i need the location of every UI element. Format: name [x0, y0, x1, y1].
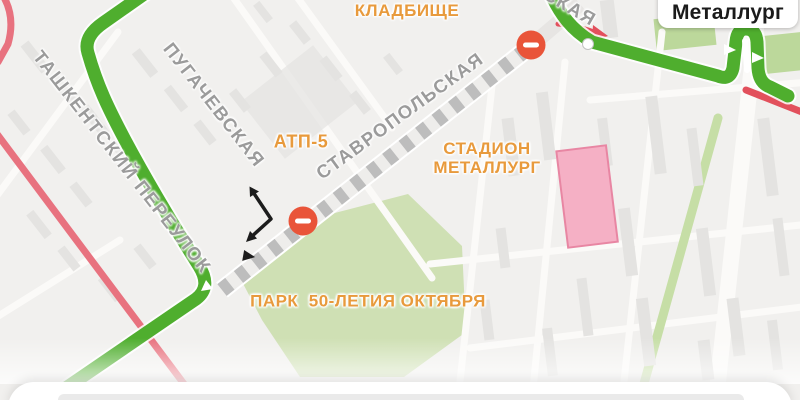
detour-annotation-arrow — [246, 187, 271, 243]
no-entry-sign — [289, 207, 318, 236]
depot-block — [241, 45, 358, 158]
map-canvas[interactable]: БЕЗЫМЯНСКОЕ КЛАДБИЩЕ АТП-5 СТАДИОН МЕТАЛ… — [0, 0, 800, 400]
no-entry-sign — [517, 31, 546, 60]
map-vector-layer — [0, 0, 800, 400]
turnaround-median — [745, 41, 747, 70]
bottom-sheet[interactable] — [8, 382, 792, 400]
park-area — [237, 194, 466, 377]
stop-chip-metallurg[interactable]: Металлург — [658, 0, 798, 28]
stadium-building — [556, 145, 617, 247]
bottom-sheet-content — [58, 394, 744, 400]
bus-stop-marker[interactable] — [583, 39, 594, 50]
stop-chip-label: Металлург — [672, 1, 784, 25]
